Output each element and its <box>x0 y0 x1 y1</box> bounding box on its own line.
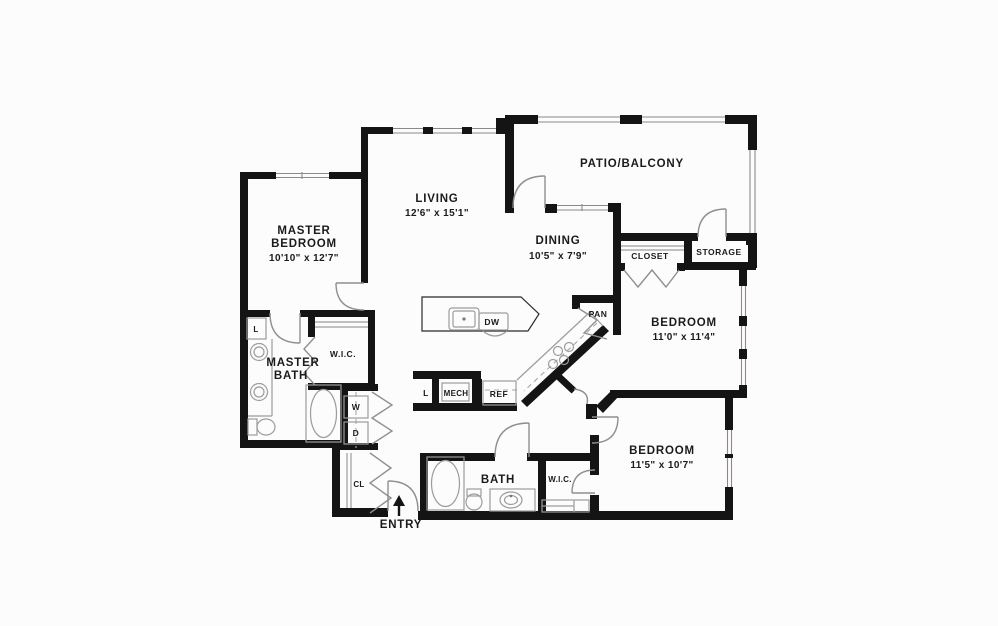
label-linen-master: L <box>253 325 258 334</box>
tub-bath <box>432 461 460 507</box>
label-hall-closet: CL <box>353 480 364 489</box>
patio-railing <box>538 117 755 233</box>
entry-arrow-icon <box>393 495 405 516</box>
window-bedroom2 <box>742 286 746 385</box>
door-patio <box>513 176 545 208</box>
label-master-bath-2: BATH <box>274 370 308 382</box>
door-bath <box>495 423 529 457</box>
label-dining: DINING <box>535 235 580 247</box>
window-master-bedroom <box>276 172 329 179</box>
label-refrigerator: REF <box>490 389 509 399</box>
label-patio: PATIO/BALCONY <box>580 158 684 170</box>
label-storage: STORAGE <box>696 247 741 257</box>
label-closet: CLOSET <box>631 251 669 261</box>
label-bedroom3: BEDROOM <box>629 445 695 457</box>
label-wic-master: W.I.C. <box>330 349 356 359</box>
door-master-bedroom <box>336 283 364 310</box>
label-pantry: PAN <box>589 309 608 319</box>
closet-shelf <box>621 246 684 250</box>
window-living <box>393 129 498 134</box>
window-bedroom3 <box>725 430 733 487</box>
door-entry <box>388 481 418 511</box>
floor-plan-page: PATIO/BALCONY LIVING 12'6" x 15'1" MASTE… <box>0 0 998 626</box>
door-bedroom2 <box>574 389 587 404</box>
label-dining-dims: 10'5" x 7'9" <box>529 251 587 262</box>
tub-master <box>311 390 337 438</box>
bifold-washer-dryer <box>372 392 392 444</box>
sink-master-1 <box>251 344 268 361</box>
label-bedroom3-dims: 11'5" x 10'7" <box>630 460 693 471</box>
toilet-master-bowl <box>257 419 275 435</box>
label-washer: W <box>352 402 361 412</box>
floor-plan-canvas: PATIO/BALCONY LIVING 12'6" x 15'1" MASTE… <box>0 0 998 626</box>
window-dining <box>557 204 608 211</box>
wic-bedroom3-shelf <box>542 500 589 512</box>
label-living: LIVING <box>415 193 458 205</box>
label-master-bedroom-1: MASTER <box>277 225 330 237</box>
label-living-dims: 12'6" x 15'1" <box>405 208 469 219</box>
label-wic-bedroom3: W.I.C. <box>548 475 572 484</box>
label-linen-kitchen: L <box>423 388 429 398</box>
sink-bath <box>500 492 522 508</box>
tub-master-outline <box>306 385 341 442</box>
label-entry: ENTRY <box>380 519 423 531</box>
door-storage <box>698 209 726 237</box>
label-dryer: D <box>353 428 360 438</box>
label-master-bath-1: MASTER <box>266 357 319 369</box>
bifold-closet-bedroom2 <box>624 270 679 287</box>
label-master-bedroom-dims: 10'10" x 12'7" <box>269 253 339 264</box>
sink-master-2 <box>251 384 268 401</box>
label-mech: MECH <box>444 389 469 398</box>
hall-closet-shelf <box>347 453 351 508</box>
kitchen-island <box>422 297 539 336</box>
label-bath: BATH <box>481 474 515 486</box>
tub-bath-outline <box>427 457 464 510</box>
label-master-bedroom-2: BEDROOM <box>271 238 337 250</box>
door-master-bath <box>270 313 300 343</box>
label-bedroom2-dims: 11'0" x 11'4" <box>653 332 716 343</box>
label-bedroom2: BEDROOM <box>651 317 717 329</box>
wic-master-shelf <box>315 322 368 327</box>
toilet-master-tank <box>248 419 257 435</box>
label-dishwasher: DW <box>484 317 500 327</box>
labels: PATIO/BALCONY LIVING 12'6" x 15'1" MASTE… <box>253 158 741 531</box>
